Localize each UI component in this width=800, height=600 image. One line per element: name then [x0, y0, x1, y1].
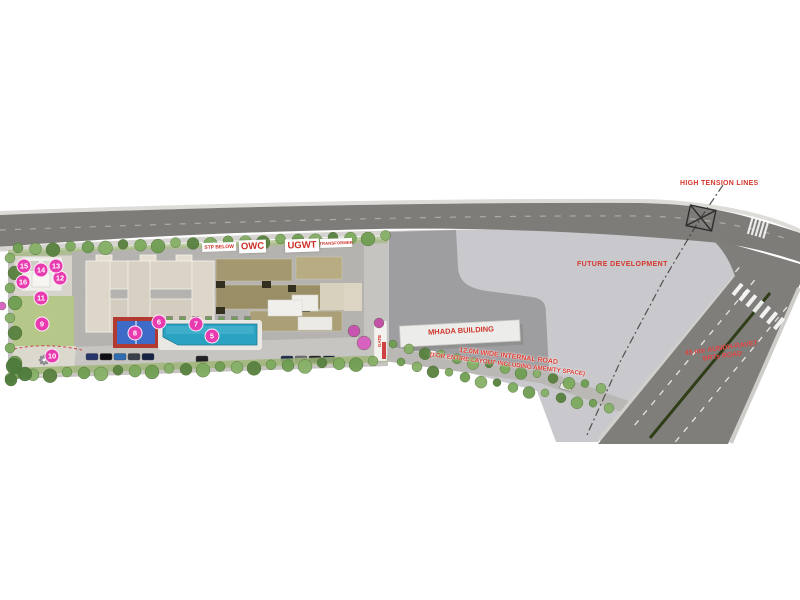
- high-tension-lines-label: HIGH TENSION LINES: [680, 180, 759, 187]
- tree-icon: [62, 367, 72, 377]
- tree-icon: [541, 389, 549, 397]
- tree-icon: [348, 325, 360, 337]
- tree-icon: [180, 363, 192, 375]
- tree-icon: [493, 379, 501, 387]
- tree-icon: [282, 360, 294, 372]
- tree-icon: [78, 367, 90, 379]
- stp-below-sign: STP BELOW: [202, 242, 236, 252]
- tree-icon: [389, 340, 397, 348]
- tree-icon: [99, 241, 113, 255]
- site-plan: HIGH TENSION LINES FUTURE DEVELOPMENT MH…: [0, 0, 800, 600]
- tree-icon: [118, 239, 128, 249]
- pavilion-1: [268, 300, 302, 316]
- tree-icon: [589, 399, 597, 407]
- tree-icon: [381, 230, 391, 240]
- tree-icon: [113, 365, 123, 375]
- tree-icon: [5, 283, 15, 293]
- tree-icon: [523, 386, 535, 398]
- tree-icon: [556, 393, 566, 403]
- owc-sign: OWC: [239, 240, 266, 254]
- tree-icon: [427, 366, 439, 378]
- owc-label: OWC: [241, 241, 265, 253]
- tree-icon: [445, 368, 453, 376]
- tree-icon: [571, 397, 583, 409]
- tree-icon: [0, 302, 6, 310]
- gate-label: GATE: [377, 321, 383, 361]
- marker-9[interactable]: 9: [35, 317, 50, 332]
- tree-icon: [5, 253, 15, 263]
- tree-icon: [82, 241, 94, 253]
- tree-icon: [43, 369, 57, 383]
- tree-icon: [604, 403, 614, 413]
- tree-icon: [215, 362, 225, 372]
- tree-icon: [596, 383, 606, 393]
- tree-icon: [30, 243, 42, 255]
- future-development-label: FUTURE DEVELOPMENT: [577, 261, 668, 268]
- transformer-label: TRANSFORMER: [319, 240, 353, 246]
- tree-icon: [475, 376, 487, 388]
- tree-icon: [8, 296, 22, 310]
- tree-icon: [5, 343, 15, 353]
- tree-icon: [317, 358, 327, 368]
- tree-icon: [18, 367, 32, 381]
- ugwt-label: UGWT: [287, 239, 316, 251]
- marker-8[interactable]: 8: [128, 326, 143, 341]
- tree-icon: [129, 365, 141, 377]
- marker-13[interactable]: 13: [49, 259, 64, 274]
- tree-icon: [135, 239, 147, 251]
- tree-icon: [171, 238, 181, 248]
- marker-5[interactable]: 5: [205, 329, 220, 344]
- marker-11[interactable]: 11: [34, 291, 49, 306]
- tree-icon: [151, 239, 165, 253]
- tree-icon: [5, 374, 17, 386]
- marker-6[interactable]: 6: [152, 315, 167, 330]
- ugwt-sign: UGWT: [285, 238, 319, 252]
- tree-icon: [5, 313, 15, 323]
- tree-icon: [196, 363, 210, 377]
- tree-icon: [46, 243, 60, 257]
- pavilion-2: [298, 317, 332, 330]
- tree-icon: [404, 344, 414, 354]
- tree-icon: [94, 367, 108, 381]
- tree-icon: [66, 241, 76, 251]
- transformer-sign: TRANSFORMER: [320, 238, 352, 248]
- tree-icon: [349, 358, 363, 372]
- stp-below-label: STP BELOW: [204, 244, 234, 251]
- marker-10[interactable]: 10: [45, 349, 60, 364]
- tree-icon: [361, 232, 375, 246]
- tree-icon: [8, 326, 22, 340]
- tree-icon: [13, 243, 23, 253]
- site-plan-graphic: [0, 0, 800, 600]
- marker-16[interactable]: 16: [16, 275, 31, 290]
- tree-icon: [187, 237, 199, 249]
- tree-icon: [397, 358, 405, 366]
- tree-icon: [357, 336, 371, 350]
- tree-icon: [508, 383, 518, 393]
- tree-icon: [298, 360, 312, 374]
- tree-icon: [231, 361, 243, 373]
- tree-icon: [247, 361, 261, 375]
- tree-icon: [145, 365, 159, 379]
- tree-icon: [266, 360, 276, 370]
- tree-icon: [460, 372, 470, 382]
- tree-icon: [333, 358, 345, 370]
- marker-7[interactable]: 7: [189, 317, 204, 332]
- tree-icon: [581, 380, 589, 388]
- marker-14[interactable]: 14: [34, 263, 49, 278]
- marker-15[interactable]: 15: [17, 259, 32, 274]
- tree-icon: [412, 362, 422, 372]
- tree-icon: [563, 377, 575, 389]
- tree-icon: [164, 363, 174, 373]
